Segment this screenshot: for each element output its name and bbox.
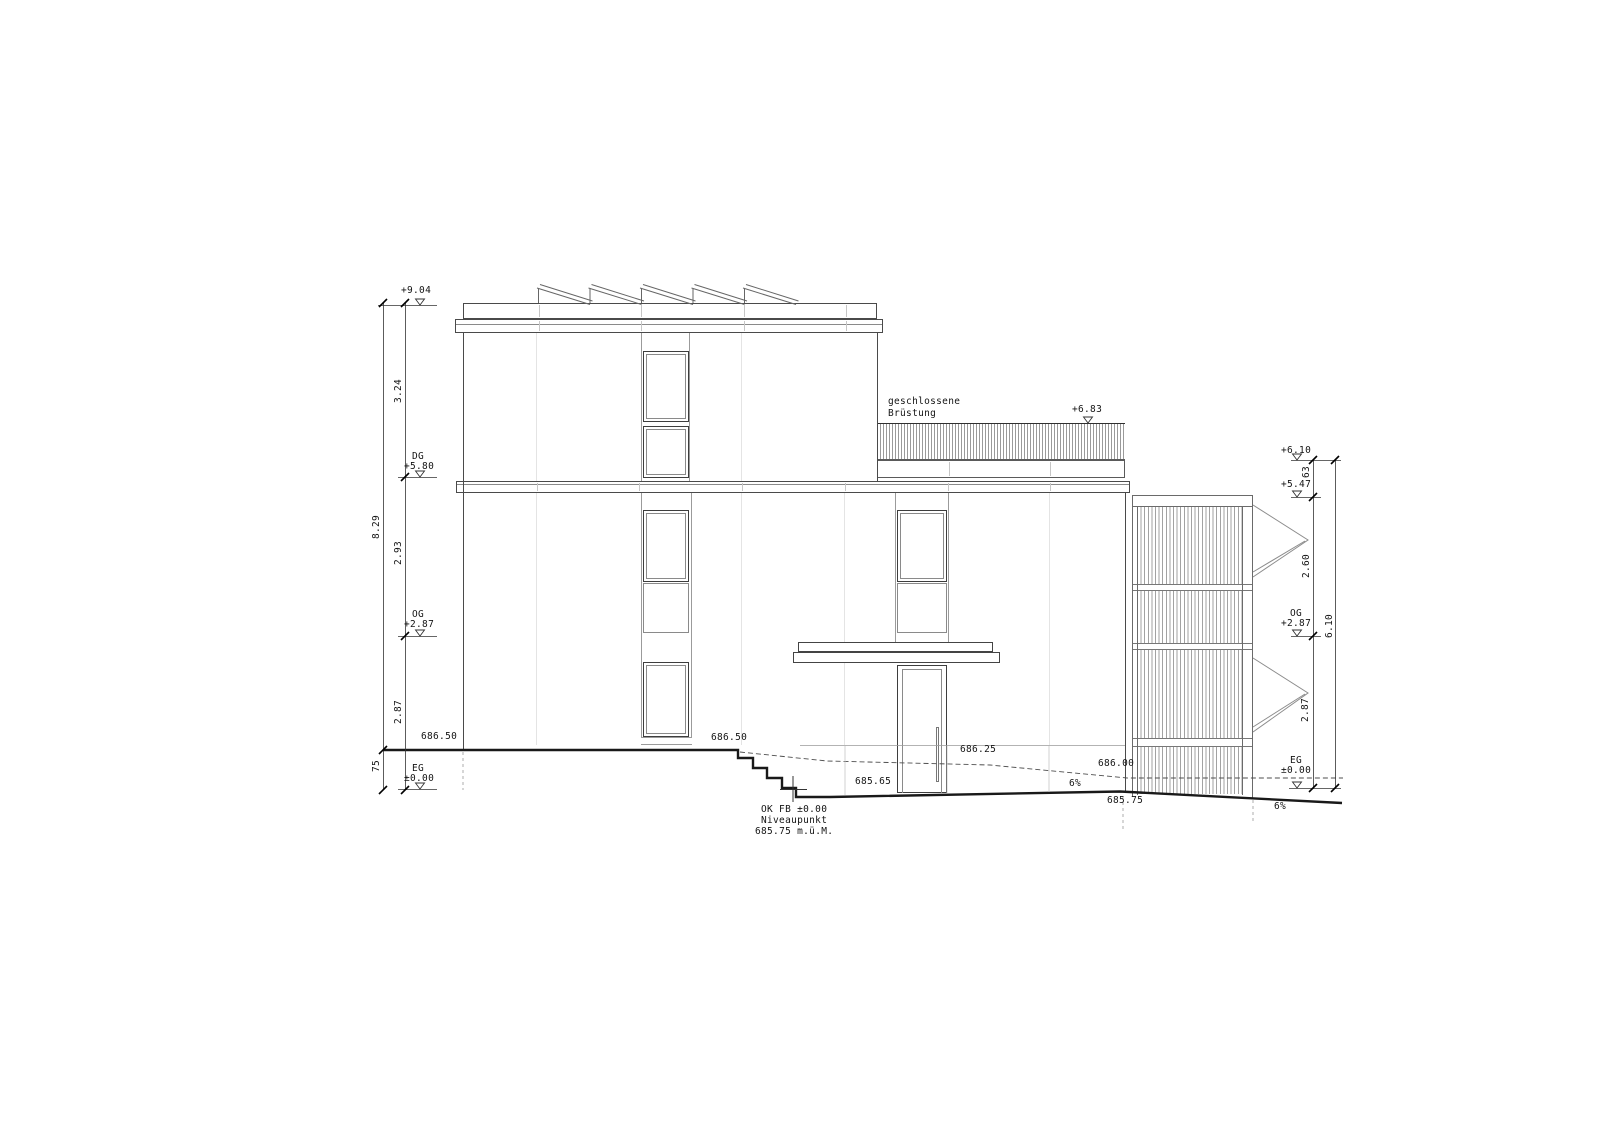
dim-seg-bot-left: 2.87	[394, 700, 404, 724]
window-sill-left	[641, 737, 692, 745]
slope-label-entry: 6%	[1069, 779, 1081, 789]
linework-overlay	[0, 0, 1600, 1131]
dim-seg-mid-right: 2.60	[1302, 554, 1312, 578]
terrace-parapet-base	[877, 460, 1125, 478]
terrace-parapet-hatch	[877, 423, 1125, 460]
parapet-note-line2: Brüstung	[888, 409, 936, 419]
slat-screen-hatch	[1137, 507, 1242, 584]
dim-seg-bot-right: 2.87	[1301, 698, 1311, 722]
level-label-dg: +5.80	[404, 462, 434, 472]
window-eg-left	[643, 662, 689, 737]
level-label-og-left: +2.87	[404, 620, 434, 630]
facade-joint	[536, 333, 537, 481]
floor-slab-band	[456, 481, 1130, 493]
slat-screen-top-rail	[1132, 495, 1253, 507]
slat-screen-rail	[1133, 738, 1252, 747]
slope-label-right: 6%	[1274, 802, 1286, 812]
window-og-right	[897, 510, 947, 582]
dim-seg-top-right: 63	[1302, 466, 1312, 478]
level-label-screen-right: +5.47	[1281, 480, 1311, 490]
facade-joint	[741, 333, 742, 481]
door-handle	[936, 727, 939, 782]
dim-total-left: 8.29	[372, 515, 382, 539]
level-label-og-right: +2.87	[1281, 619, 1311, 629]
facade-joint	[1049, 493, 1050, 745]
slat-screen-rail	[1133, 584, 1252, 591]
projection-dashed-lines	[463, 752, 1253, 830]
window-og-left	[643, 510, 689, 582]
dim-base-left: 75	[372, 760, 382, 772]
level-label-eg-right: ±0.00	[1281, 766, 1311, 776]
entrance-door	[897, 665, 947, 793]
facade-joint	[844, 493, 845, 745]
elevation-drawing: +9.04 3.24 DG +5.80 8.29 2.93 OG +2.87 2…	[0, 0, 1600, 1131]
slat-screen-hatch	[1137, 747, 1242, 794]
entrance-canopy-top	[798, 642, 993, 652]
entrance-canopy-bottom	[793, 652, 1000, 663]
wall-lines	[464, 333, 1126, 792]
below-grade-joints	[845, 746, 1049, 795]
spot-elevation-steps: 686.50	[711, 733, 747, 743]
spandrel-panel-right	[897, 583, 947, 633]
level-label-roof: +9.04	[401, 286, 431, 296]
datum-note-line2: Niveaupunkt	[761, 816, 827, 826]
level-label-top-right: +6.10	[1281, 446, 1311, 456]
parapet-note-line1: geschlossene	[888, 397, 960, 407]
solar-panels	[537, 285, 799, 305]
spot-elevation-entry: 685.65	[855, 777, 891, 787]
dim-seg-mid-left: 2.93	[394, 541, 404, 565]
spot-elevation-right: 686.00	[1098, 759, 1134, 769]
window-dg-lower	[643, 426, 689, 478]
existing-terrain-dashed	[740, 752, 1343, 778]
facade-joint	[536, 493, 537, 745]
spot-elevation-left: 686.50	[421, 732, 457, 742]
facade-joint	[741, 493, 742, 745]
roof-cornice	[455, 319, 883, 333]
datum-cross	[780, 776, 807, 802]
roof-parapet-band	[463, 303, 877, 319]
slat-screen-rail	[1133, 643, 1252, 650]
dim-total-right: 6.10	[1325, 614, 1335, 638]
window-dg-upper	[643, 351, 689, 422]
slat-screen-hatch	[1137, 591, 1242, 643]
spot-elevation-mid: 686.25	[960, 745, 996, 755]
spot-elevation-low: 685.75	[1107, 796, 1143, 806]
slat-screen-hatch	[1137, 650, 1242, 738]
level-label-parapet: +6.83	[1072, 405, 1102, 415]
datum-note-line1: OK FB ±0.00	[761, 805, 827, 815]
dim-seg-top-left: 3.24	[394, 379, 404, 403]
datum-note-line3: 685.75 m.ü.M.	[755, 827, 833, 837]
level-label-eg-left: ±0.00	[404, 774, 434, 784]
spandrel-panel-left	[643, 583, 689, 633]
